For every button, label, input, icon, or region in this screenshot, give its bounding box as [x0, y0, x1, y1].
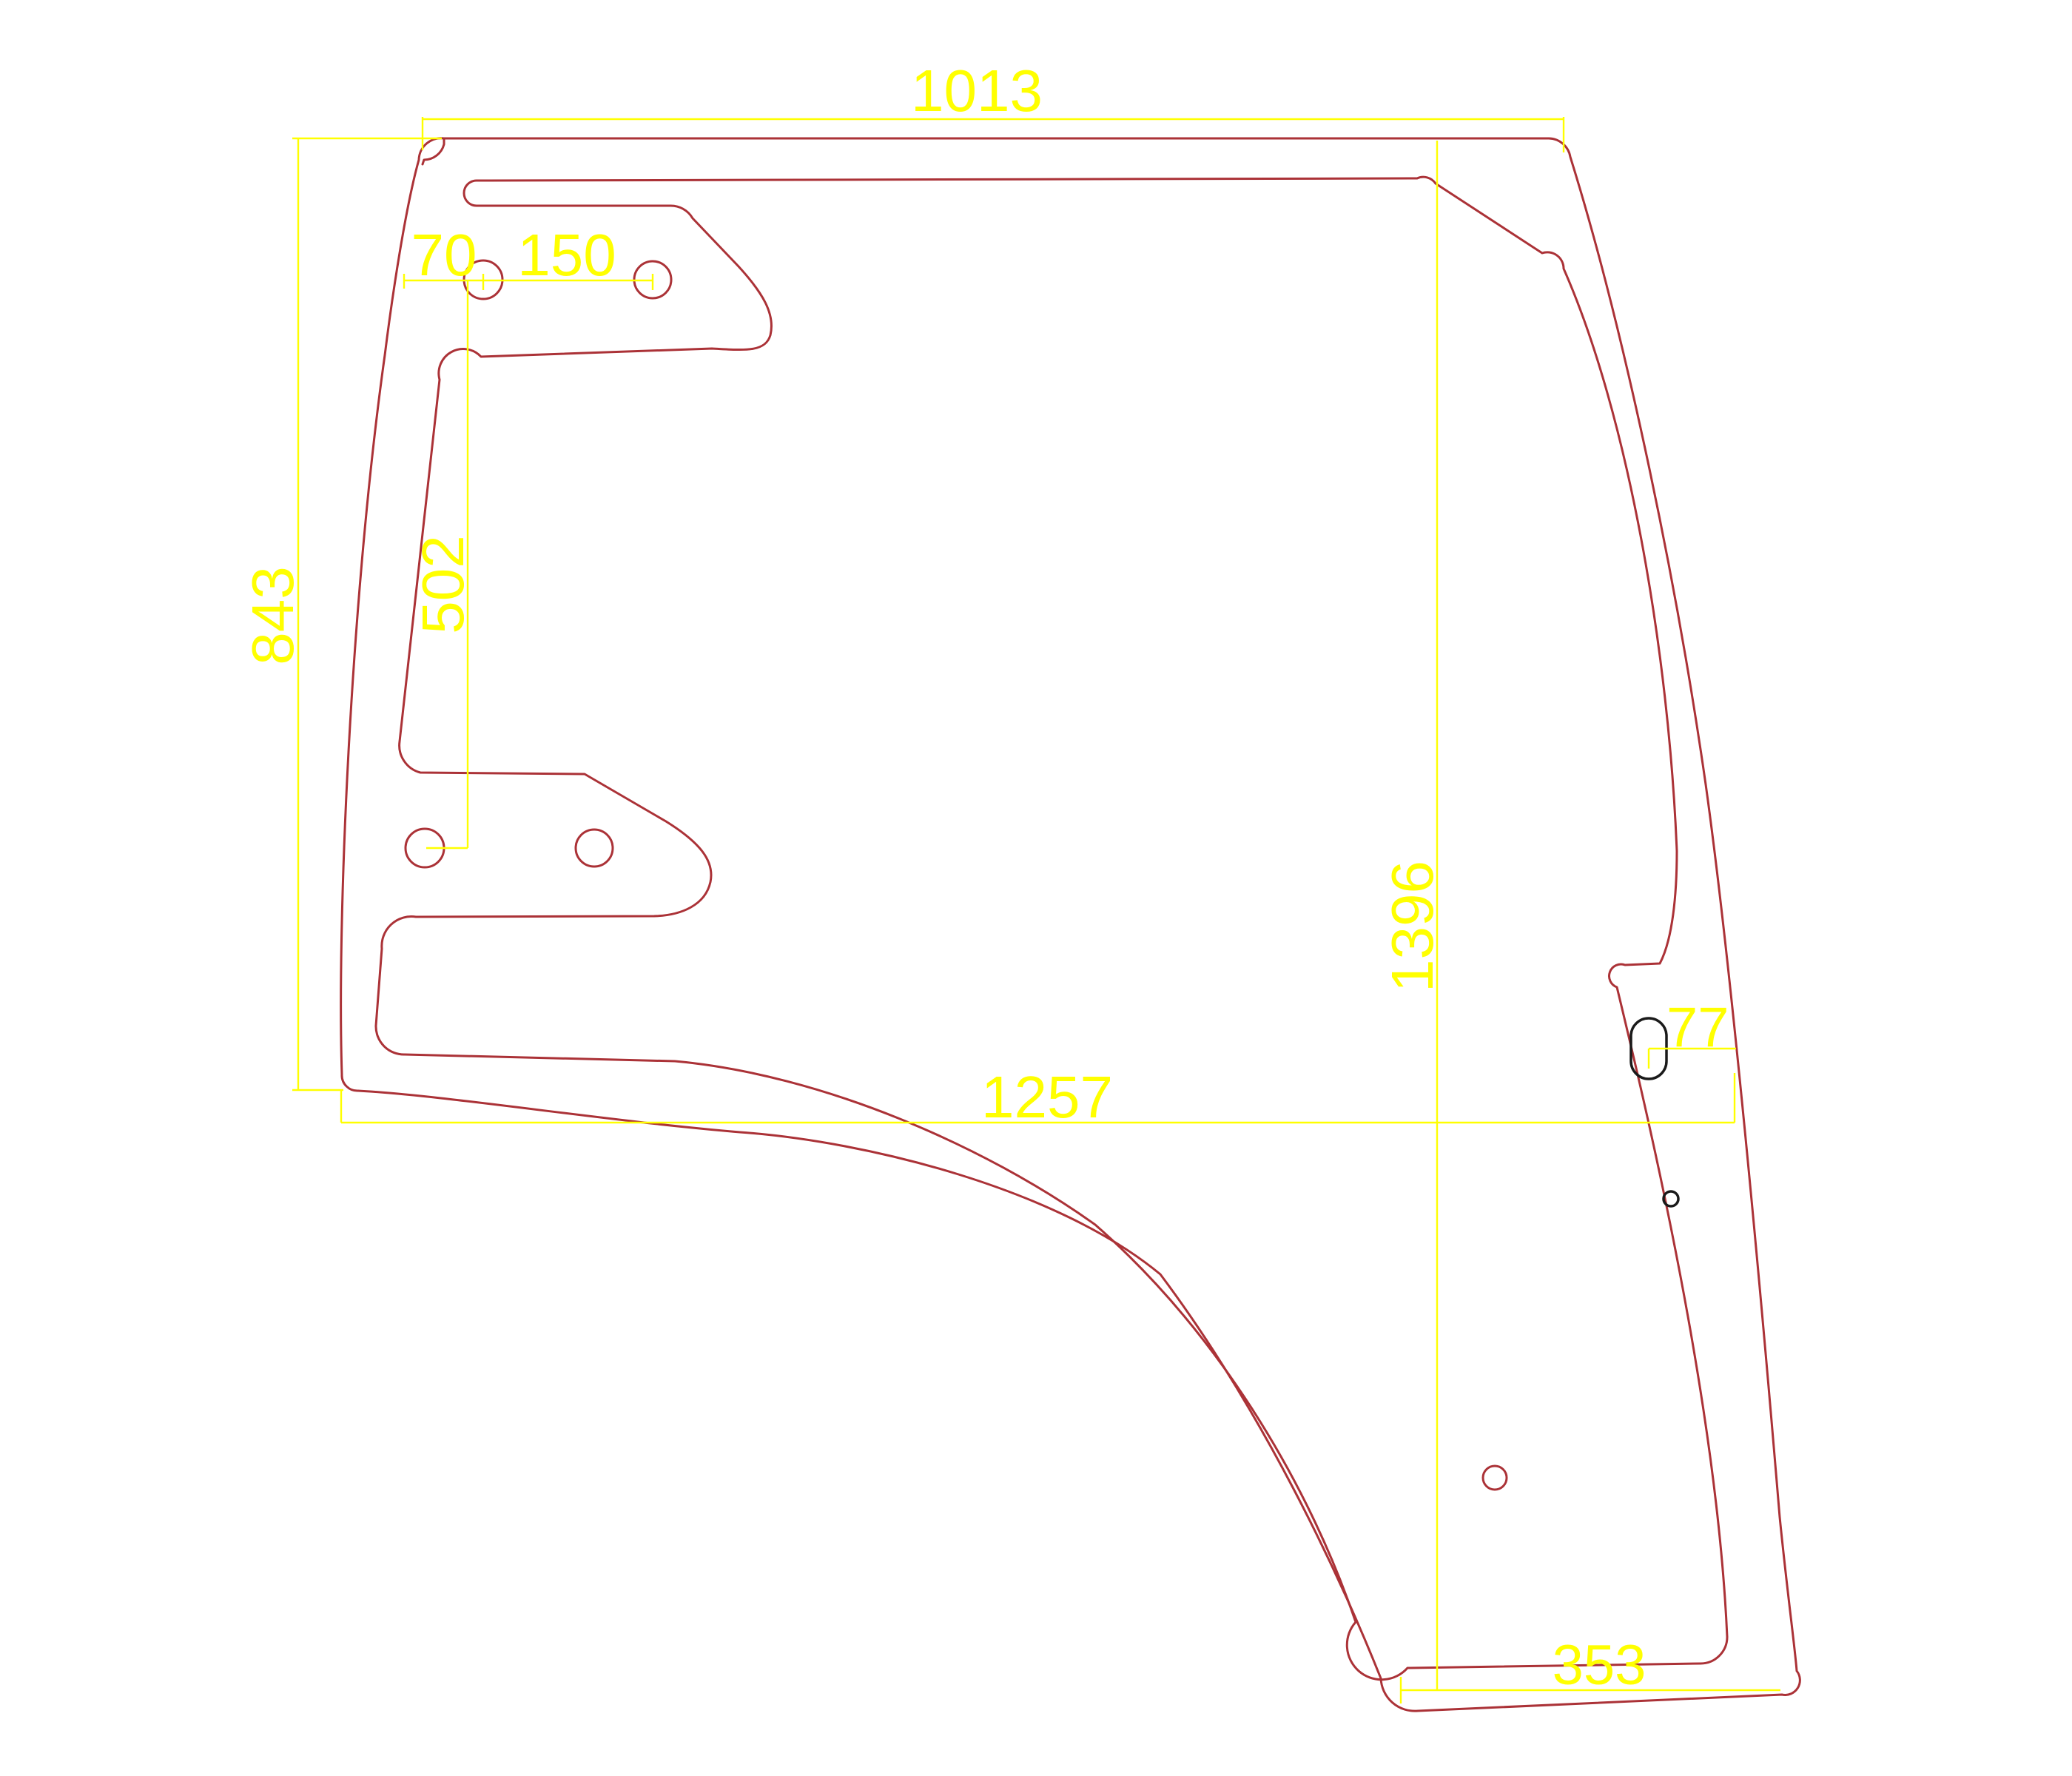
dim-70-label: 70: [411, 222, 477, 288]
dim-77-label: 77: [1666, 996, 1729, 1059]
lower-bracket-hole-right: [576, 830, 613, 867]
dim-502-label: 502: [410, 535, 476, 633]
dim-843-label: 843: [240, 566, 306, 665]
cad-drawing-page: 1013 70 150 843 502 1396 1257 77 353: [0, 0, 2072, 1776]
dim-1396-label: 1396: [1379, 861, 1445, 992]
lower-glass-hole: [1483, 1466, 1507, 1490]
cad-drawing-canvas: 1013 70 150 843 502 1396 1257 77 353: [0, 0, 2072, 1776]
dim-150-label: 150: [517, 222, 616, 288]
dim-1013-label: 1013: [911, 58, 1043, 124]
dim-1257-label: 1257: [981, 1064, 1113, 1130]
glass-outer-outline: [341, 138, 1800, 1711]
frit-inner-outline: [376, 177, 1727, 1680]
dim-353-label: 353: [1553, 1634, 1646, 1697]
